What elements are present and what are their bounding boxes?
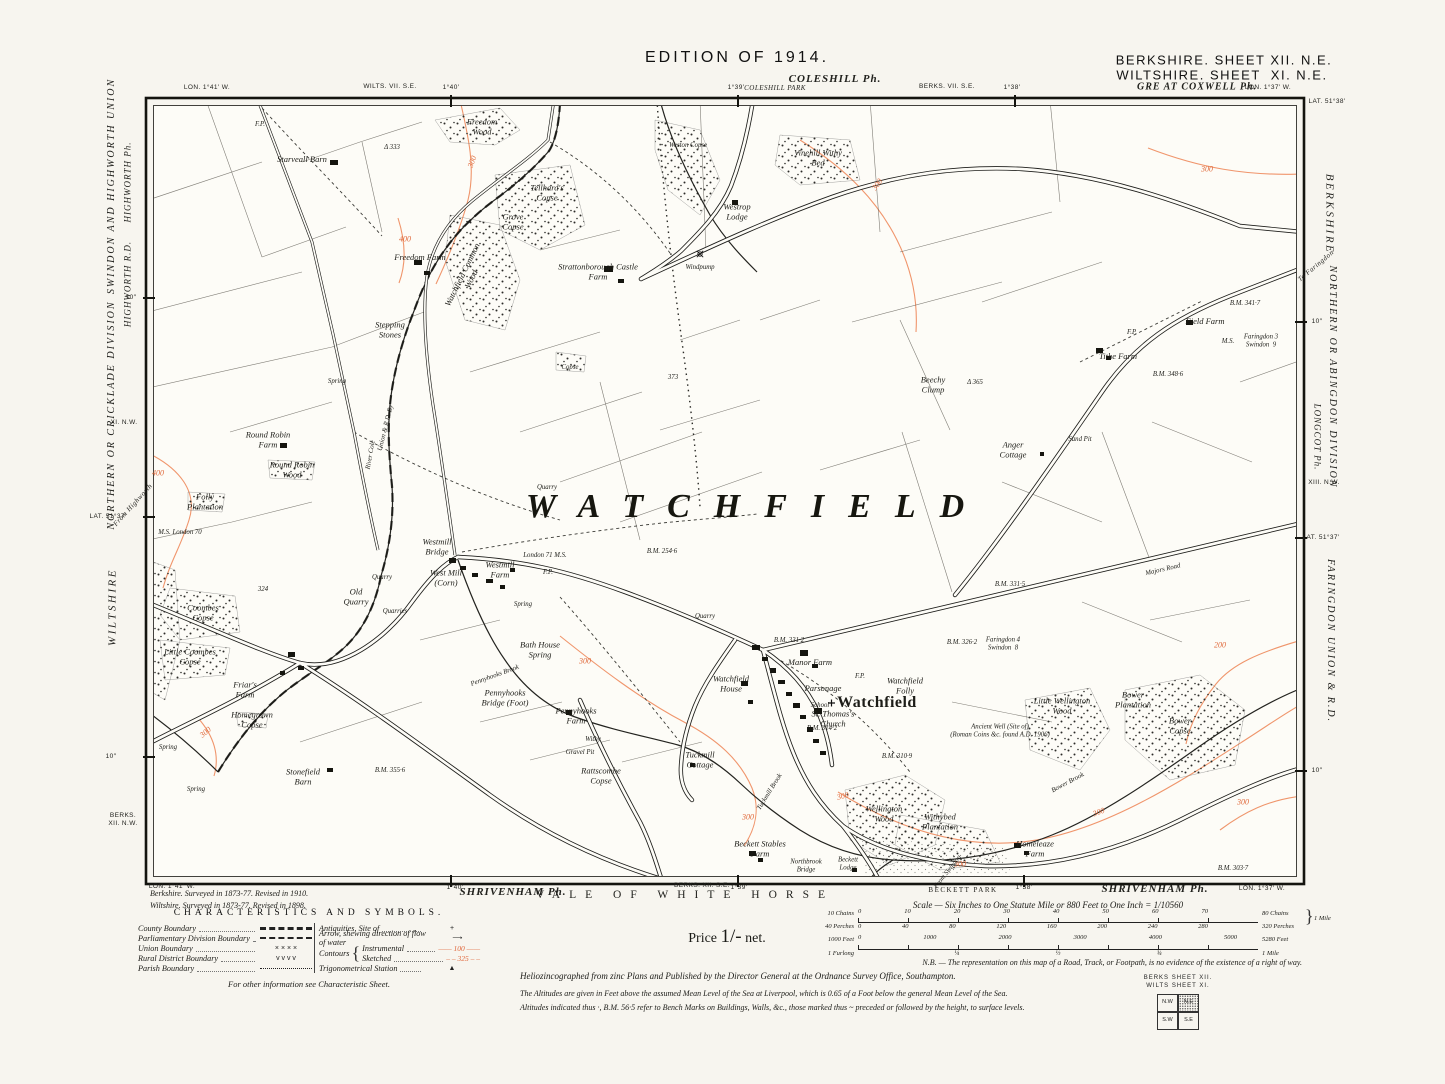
furlong-numbers: ¼½¾	[858, 950, 1258, 957]
map-label: Beckett Stables Farm	[734, 839, 786, 858]
map-label: Old Quarry	[343, 587, 368, 606]
chains-numbers: 010203040506070	[858, 908, 1208, 915]
map-label: Round Robin Farm	[246, 430, 291, 449]
map-label: Watchfield Common Wood	[443, 242, 490, 312]
legend-title: CHARACTERISTICS AND SYMBOLS.	[138, 908, 480, 918]
map-label: B.M. 341·7	[1230, 300, 1260, 308]
longitude-corner-se: LON. 1°37′ W.	[1239, 885, 1285, 893]
county-boundary-symbol	[260, 927, 312, 930]
map-label: Quarries	[383, 608, 408, 616]
map-label: Homegrown Copse	[231, 710, 273, 729]
map-label: Spring	[159, 744, 177, 752]
map-label: 300	[836, 791, 850, 803]
right-margin-parish: LONGCOT Ph.	[1312, 404, 1323, 471]
map-label: 300	[1237, 799, 1249, 808]
scale-tick-label: 30	[1003, 908, 1010, 915]
legend-row-water-arrow: Arrow, shewing direction of flow of wate…	[319, 933, 480, 943]
map-label: Copse	[562, 364, 579, 372]
map-label: 373	[668, 374, 678, 382]
parish-boundary-symbol	[260, 968, 312, 969]
quadrant-nw: N.W	[1157, 994, 1178, 1012]
map-label: Δ 365	[967, 379, 983, 387]
map-label: Spring	[187, 786, 205, 794]
scale-tick-label: 2000	[999, 934, 1012, 941]
map-label: B.M. 355·6	[375, 767, 405, 775]
map-label: 324	[258, 586, 268, 594]
map-label: Freedom Wood	[467, 117, 497, 136]
rural-district-boundary-symbol: v v v v	[258, 955, 314, 962]
quadrant-ne-highlighted: N.E	[1178, 994, 1199, 1012]
map-label: Tuckmill Cottage	[685, 750, 714, 769]
right-tick-10-lower: 10″	[1312, 767, 1323, 775]
legend-contour-sketched: Sketched ‒ ‒ 325 ‒ ‒	[362, 953, 480, 963]
map-label: Field Farm	[1186, 317, 1225, 327]
map-label: 200	[1214, 642, 1226, 651]
legend-row-union: Union Boundary × × × ×	[138, 943, 314, 953]
scale-tick-label: 10	[904, 908, 911, 915]
scale-tick-label: 200	[1097, 923, 1107, 930]
edition-title: EDITION OF 1914.	[645, 49, 829, 67]
windpump-icon	[697, 251, 703, 257]
beckett-park-label: BECKETT PARK	[928, 886, 997, 894]
map-label: Tithe Farm	[1099, 352, 1137, 362]
adjacent-parish-great-coxwell: GRE AT COXWELL Ph.	[1137, 82, 1257, 93]
map-label: Little Coombes Copse	[164, 647, 216, 666]
sheet-title-berkshire: BERKSHIRE. SHEET XII. N.E.	[1116, 53, 1332, 68]
map-label: M.S. London 70	[158, 529, 201, 537]
legend-footnote: For other information see Characteristic…	[138, 979, 480, 989]
map-label: Stepping Stones	[375, 320, 405, 339]
left-tick-10-lower: 10″	[106, 753, 117, 761]
scale-tick-label: 80	[949, 923, 956, 930]
map-label: Spring	[328, 378, 346, 386]
lane-casings	[258, 100, 554, 555]
map-label: Rattscombe Copse	[581, 766, 621, 785]
beckett-park-shading	[862, 838, 1012, 882]
map-label: 300	[1092, 807, 1106, 820]
scale-tick-label: 40	[902, 923, 909, 930]
right-margin-county: BERKSHIRE	[1322, 174, 1335, 255]
map-label: Northbrook Bridge	[790, 858, 821, 873]
adjacent-sheet-xi-nw: XI. N.W.	[110, 419, 137, 427]
map-label: Bower Copse	[1169, 716, 1191, 735]
map-label: Bower Plantation	[1115, 690, 1151, 709]
map-label: B.M. 310·9	[882, 753, 912, 761]
map-label: Beechy Clump	[921, 375, 946, 394]
scale-tick-label: 4000	[1149, 934, 1162, 941]
latitude-corner-ne: LAT. 51°38′	[1308, 98, 1345, 106]
scale-tick-label: 60	[1152, 908, 1159, 915]
map-label: Gravel Pit	[566, 749, 595, 757]
map-label: Bath House Spring	[520, 640, 560, 659]
map-label: B.M. 348·6	[1153, 371, 1183, 379]
os-map-sheet: F.P.Freedom WoodStarveall BarnΔ 333Westo…	[0, 0, 1445, 1084]
map-label: Watchfield	[837, 694, 917, 712]
scale-tick-label: 120	[996, 923, 1006, 930]
adjacent-parish-shrivenham-right: SHRIVENHAM Ph.	[1102, 883, 1209, 895]
adjacent-sheet-berks-xii-se: BERKS. XII. S.E.	[674, 882, 730, 890]
map-label: Faringdon 3 Swindon 9	[1244, 333, 1278, 348]
map-label: Windpump	[685, 264, 714, 272]
map-label: 300	[1201, 166, 1213, 175]
map-label: Pennyhooks Brook	[470, 664, 520, 689]
feet-numbers: 010002000300040005000	[858, 934, 1237, 941]
scale-tick-label: 0	[858, 908, 861, 915]
adjacent-sheet-berks-xii-nw: BERKS. XII. N.W.	[108, 812, 137, 828]
map-label: Round Robin Wood	[270, 460, 315, 479]
legend-contour-instrumental: Instrumental —— 100 ——	[362, 943, 480, 953]
instrumental-contour-sample: —— 100 ——	[438, 944, 480, 953]
map-label: Withy	[585, 736, 600, 744]
map-label: Manor Farm	[788, 658, 832, 668]
scale-tick-label: 240	[1148, 923, 1158, 930]
adjacent-sheet-berks-vii: BERKS. VII. S.E.	[919, 83, 975, 91]
map-label: 300	[579, 658, 591, 667]
scale-tick-label: 70	[1201, 908, 1208, 915]
antiquities-symbol: +	[424, 925, 480, 932]
water-flow-arrow-icon: ⟶	[435, 934, 480, 942]
map-label: 300	[199, 726, 214, 741]
map-label: Grove Copse	[502, 212, 523, 231]
map-label: From Swindon	[933, 854, 964, 890]
map-label: 400	[152, 470, 164, 479]
scale-tick-label: 20	[954, 908, 961, 915]
field-boundaries	[148, 100, 1296, 762]
map-label: Homeleaze Farm	[1016, 839, 1054, 858]
vale-of-white-horse-label: VALE OF WHITE HORSE	[536, 889, 834, 901]
legend-right-column: Antiquities, Site of + Arrow, shewing di…	[314, 923, 480, 973]
price-label: Price 1/- net.	[688, 926, 765, 948]
map-label: Vinehill Withy Bed	[794, 148, 842, 167]
right-tick-10-upper: 10″	[1312, 318, 1323, 326]
map-label: West Mill (Corn)	[430, 568, 462, 587]
map-label: Coombes Copse	[187, 603, 219, 622]
map-label: F.P.	[855, 673, 865, 681]
quadrant-sw: S.W	[1157, 1012, 1178, 1030]
map-label: F.P.	[543, 569, 553, 577]
left-margin-rural-district: HIGHWORTH R.D.	[123, 241, 134, 327]
map-label: Friar's Farm	[233, 680, 257, 699]
scale-tick-label: ½	[1056, 950, 1061, 957]
contours-brace: {	[351, 943, 360, 964]
map-label: Westrop Lodge	[723, 202, 750, 221]
scale-tick-label: 1000	[923, 934, 936, 941]
scale-tick-label: 160	[1047, 923, 1057, 930]
left-margin-division: NORTHERN OR CRICKLADE DIVISION	[106, 300, 118, 529]
rights-of-way-note: N.B. — The representation on this map of…	[830, 958, 1302, 967]
map-label: Freedom Farm	[394, 253, 445, 263]
sheet-index-diagram: BERKS SHEET XII. WILTS SHEET XI. N.W N.E…	[1130, 974, 1226, 1030]
union-boundary-symbol: × × × ×	[258, 945, 314, 952]
map-label: Westmill Farm	[486, 560, 515, 579]
legend-row-trig-station: Trigonometrical Station ▲	[319, 963, 480, 973]
map-label: Pennyhooks Bridge (Foot)	[482, 688, 529, 707]
map-label: Faringdon 4 Swindon 8	[986, 636, 1020, 651]
legend-row-county: County Boundary	[138, 923, 314, 933]
publication-note: Heliozincographed from zinc Plans and Pu…	[520, 971, 1110, 981]
map-label: Union & R.D. By	[377, 404, 396, 451]
longitude-tick-139-bottom: 1°39′	[731, 884, 748, 892]
map-label: Pennyhooks Farm	[555, 706, 596, 725]
map-label: B.M. 331·5	[995, 581, 1025, 589]
left-margin-union: SWINDON AND HIGHWORTH UNION	[106, 78, 118, 294]
parish-name-watchfield: WATCHFIELD	[526, 488, 988, 526]
adjacent-sheet-xiii-nw: XIII. N.W.	[1308, 479, 1339, 487]
trig-station-symbol: ▲	[424, 965, 480, 972]
map-label: 300	[742, 814, 754, 823]
sheet-title-wiltshire: WILTSHIRE. SHEET XI. N.E.	[1116, 68, 1327, 83]
longitude-tick-139-top: 1°39′	[728, 84, 745, 92]
left-tick-10-upper: 10″	[126, 294, 137, 302]
right-margin-division: NORTHERN OR ABINGDON DIVISION	[1326, 265, 1338, 488]
map-label: 300	[871, 178, 885, 193]
left-margin-county: WILTSHIRE	[106, 568, 119, 646]
longitude-corner-ne: LON. 1°37′ W.	[1245, 84, 1291, 92]
map-label: Weston Copse	[669, 142, 707, 150]
map-label: Ancient Well (Site of) (Roman Coins &c. …	[950, 723, 1050, 738]
sheet-quadrant-grid: N.W N.E S.W S.E	[1157, 994, 1199, 1030]
map-label: F.P.	[1127, 329, 1137, 337]
scale-tick-label: ¾	[1157, 950, 1162, 957]
longitude-tick-140-top: 1°40′	[443, 84, 460, 92]
map-label: Tellhard's Copse	[530, 183, 563, 202]
quadrant-se: S.E	[1178, 1012, 1199, 1030]
road-destination-from-highworth: From Highworth	[112, 482, 155, 528]
map-label: Quarry	[372, 574, 392, 582]
legend-left-column: County Boundary Parliamentary Division B…	[138, 923, 314, 973]
map-label: Majors Road	[1145, 562, 1181, 577]
survey-berkshire: Berkshire. Surveyed in 1873-77. Revised …	[150, 888, 308, 900]
map-label: Beckett Lodge	[838, 856, 858, 871]
legend-row-parliamentary: Parliamentary Division Boundary	[138, 933, 314, 943]
map-label: B.M. 254·6	[647, 548, 677, 556]
altitudes-note: The Altitudes are given in Feet above th…	[520, 989, 1110, 998]
map-label: Folly Plantation	[187, 492, 223, 511]
scale-tick-label: 0	[858, 934, 861, 941]
map-label: Watchfield House	[713, 674, 749, 693]
map-label: Wellington Wood	[866, 804, 903, 823]
longitude-tick-138-top: 1°38′	[1004, 84, 1021, 92]
map-label: Strattonborough Castle Farm	[558, 262, 638, 281]
lane-fills	[258, 100, 554, 555]
latitude-right: LAT. 51°37′	[1302, 534, 1339, 542]
scale-tick-label: 40	[1053, 908, 1060, 915]
sketched-contour-sample: ‒ ‒ 325 ‒ ‒	[446, 954, 480, 963]
scale-tick-label: 50	[1102, 908, 1109, 915]
map-label: Westmill Bridge	[423, 537, 452, 556]
map-label: F.P.	[255, 121, 265, 129]
map-label: B.M. 326·2	[947, 639, 977, 647]
map-label: Anger Cottage	[1000, 440, 1027, 459]
map-label: Starveall Barn	[277, 155, 327, 165]
map-label: 300	[467, 155, 480, 169]
map-label: B.M. 314·2	[807, 725, 837, 733]
scale-tick-label: 280	[1198, 923, 1208, 930]
map-label: 400	[399, 236, 411, 245]
map-label: Little Wellington Wood	[1034, 696, 1091, 715]
legend-row-rural-district: Rural District Boundary v v v v	[138, 953, 314, 963]
map-label: Tuckmill Brook	[756, 772, 784, 811]
map-label: Bower Brook	[1050, 771, 1085, 795]
map-label: Sand Pit	[1068, 436, 1091, 444]
map-label: River Cole	[365, 440, 378, 470]
left-margin-parish: HIGHWORTH Ph.	[123, 142, 134, 223]
adjacent-sheet-wilts-vii: WILTS. VII. S.E.	[363, 83, 416, 91]
map-label: B.M. 331·2	[774, 637, 804, 645]
longitude-corner-nw: LON. 1°41′ W.	[184, 84, 230, 92]
scale-tick-label: 3000	[1074, 934, 1087, 941]
longitude-tick-138-bottom: 1°38′	[1016, 884, 1033, 892]
right-margin-union: FARINGDON UNION & R.D.	[1324, 559, 1336, 723]
perches-numbers: 04080120160200240280	[858, 923, 1208, 930]
map-label: M.S.	[1222, 338, 1234, 346]
coleshill-park-label: COLESHILL PARK	[744, 84, 806, 92]
map-label: Withybed Plantation	[922, 812, 958, 831]
parliamentary-boundary-symbol	[260, 937, 312, 939]
price-value: 1/-	[721, 926, 742, 947]
map-label: Parsonage	[805, 684, 842, 694]
scale-tick-label: 0	[858, 923, 861, 930]
scale-tick-label: ¼	[954, 950, 959, 957]
map-label: London 71 M.S.	[523, 552, 566, 560]
benchmarks-note: Altitudes indicated thus ·, B.M. 56·5 re…	[520, 1003, 1110, 1012]
map-label: Spring	[514, 601, 532, 609]
map-label: Watchfield Folly	[887, 676, 923, 695]
legend-characteristics: CHARACTERISTICS AND SYMBOLS. County Boun…	[138, 908, 480, 989]
scale-block: Scale — Six Inches to One Statute Mile o…	[800, 898, 1325, 964]
legend-row-parish: Parish Boundary	[138, 963, 314, 973]
map-label: Stonefield Barn	[286, 767, 320, 786]
map-label: Δ 333	[384, 144, 400, 152]
map-label: B.M. 303·7	[1218, 865, 1248, 873]
scale-tick-label: 5000	[1224, 934, 1237, 941]
map-label: Quarry	[695, 613, 715, 621]
